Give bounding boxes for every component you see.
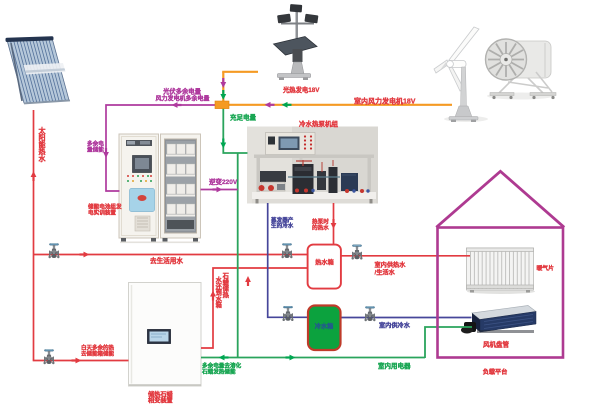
svg-text:风机盘管: 风机盘管 bbox=[483, 340, 510, 349]
svg-text:多余电量去溶化石蜡发热储能: 多余电量去溶化石蜡发热储能 bbox=[201, 362, 242, 376]
svg-text:光伏多余电量: 光伏多余电量 bbox=[162, 87, 201, 96]
svg-text:室内用电器: 室内用电器 bbox=[378, 361, 411, 370]
svg-text:白天多余的热去储能箱储能: 白天多余的热去储能箱储能 bbox=[81, 344, 115, 358]
svg-text:去生活用水: 去生活用水 bbox=[150, 256, 183, 265]
svg-text:充足电量: 充足电量 bbox=[230, 113, 257, 122]
svg-text:负载平台: 负载平台 bbox=[483, 368, 508, 376]
svg-text:热水箱: 热水箱 bbox=[315, 259, 334, 267]
svg-text:冷水箱: 冷水箱 bbox=[315, 323, 334, 331]
svg-text:热泵时的热水: 热泵时的热水 bbox=[312, 217, 329, 231]
svg-text:光热发电18V: 光热发电18V bbox=[282, 85, 320, 94]
svg-text:多余电量储能: 多余电量储能 bbox=[87, 140, 104, 154]
svg-text:逆变220V: 逆变220V bbox=[209, 177, 238, 186]
svg-text:蒸发器产生的冷水: 蒸发器产生的冷水 bbox=[271, 216, 294, 230]
svg-text:太阳能热水: 太阳能热水 bbox=[38, 126, 46, 163]
svg-text:储热石蜡相变装置: 储热石蜡相变装置 bbox=[147, 391, 174, 405]
svg-text:风力发电机多余电量: 风力发电机多余电量 bbox=[155, 95, 209, 103]
svg-text:暖气片: 暖气片 bbox=[537, 264, 555, 272]
svg-text:室内风力发电机18V: 室内风力发电机18V bbox=[354, 97, 416, 106]
svg-text:室内供冷水: 室内供冷水 bbox=[379, 322, 411, 330]
svg-text:石蜡储热: 石蜡储热 bbox=[221, 272, 229, 299]
svg-text:冷水热泵机组: 冷水热泵机组 bbox=[299, 119, 339, 128]
